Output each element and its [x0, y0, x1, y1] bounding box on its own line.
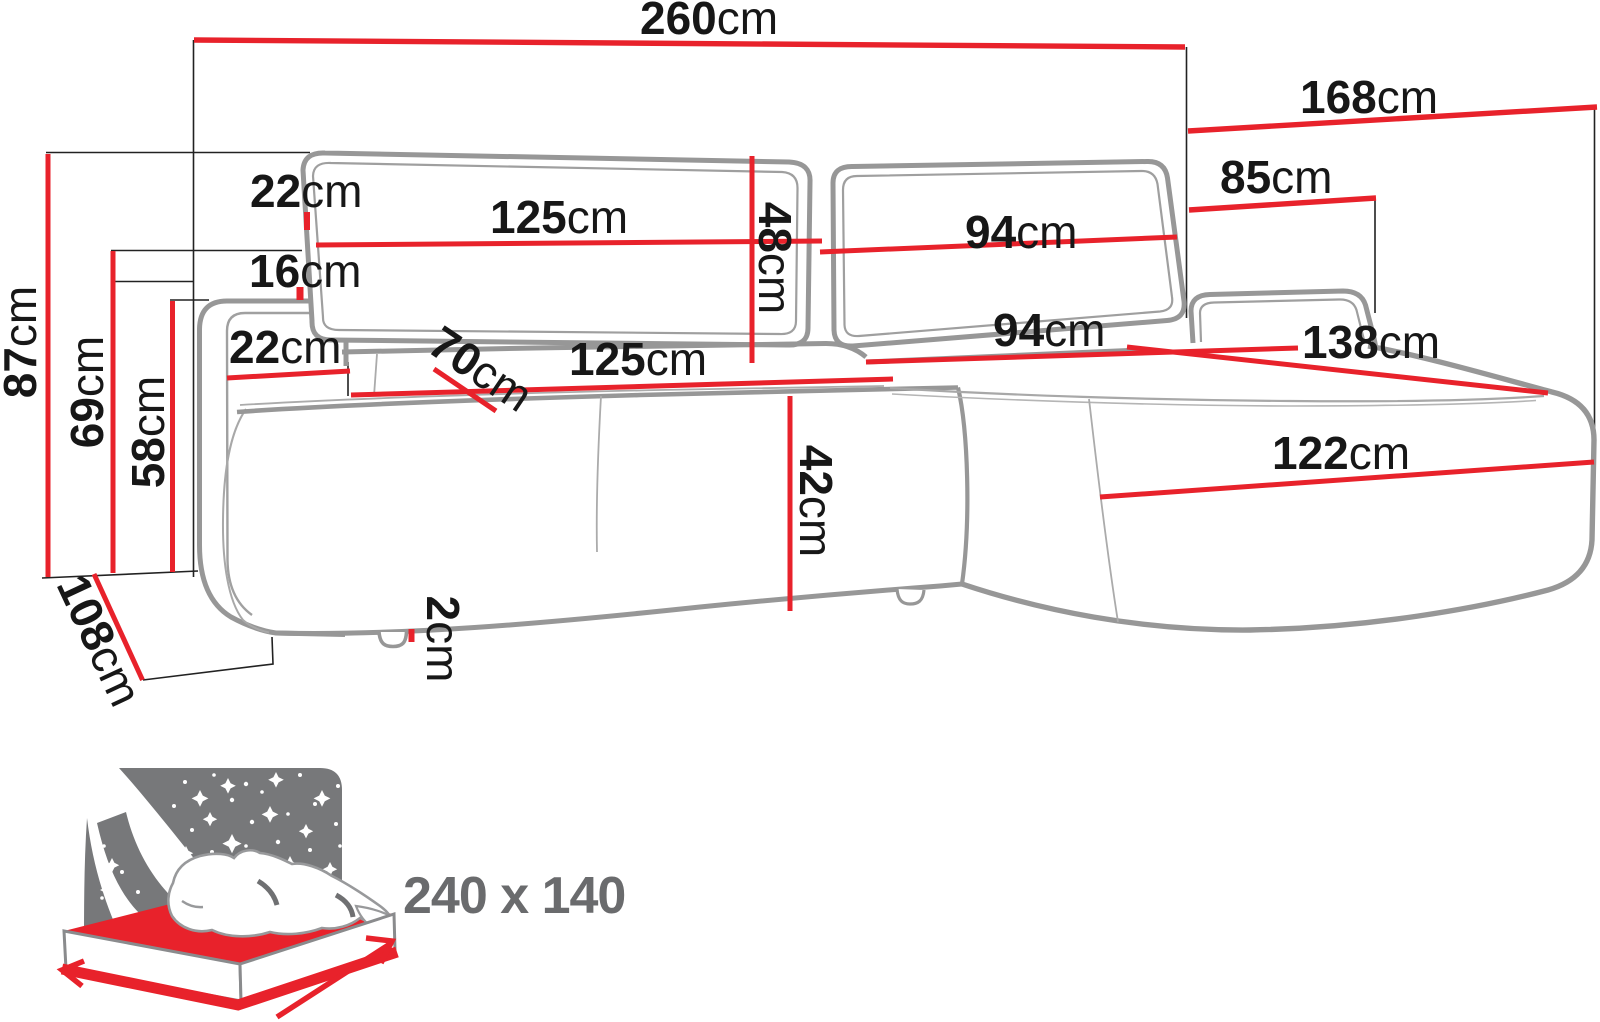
svg-text:138cm: 138cm — [1302, 316, 1440, 368]
svg-text:42cm: 42cm — [790, 445, 842, 558]
svg-text:2cm: 2cm — [417, 596, 469, 683]
svg-text:16cm: 16cm — [249, 245, 362, 297]
svg-text:58cm: 58cm — [122, 376, 174, 489]
svg-text:125cm: 125cm — [569, 333, 707, 385]
svg-text:125cm: 125cm — [490, 191, 628, 243]
svg-text:69cm: 69cm — [61, 336, 113, 449]
svg-text:168cm: 168cm — [1300, 71, 1438, 123]
svg-text:122cm: 122cm — [1272, 427, 1410, 479]
svg-text:94cm: 94cm — [965, 206, 1078, 258]
svg-text:22cm: 22cm — [229, 321, 342, 373]
svg-text:94cm: 94cm — [993, 304, 1106, 356]
svg-text:22cm: 22cm — [250, 165, 363, 217]
svg-text:48cm: 48cm — [749, 202, 801, 315]
svg-text:87cm: 87cm — [0, 286, 46, 399]
svg-text:85cm: 85cm — [1220, 151, 1333, 203]
svg-text:240 x 140: 240 x 140 — [403, 867, 625, 925]
svg-text:260cm: 260cm — [640, 0, 778, 44]
